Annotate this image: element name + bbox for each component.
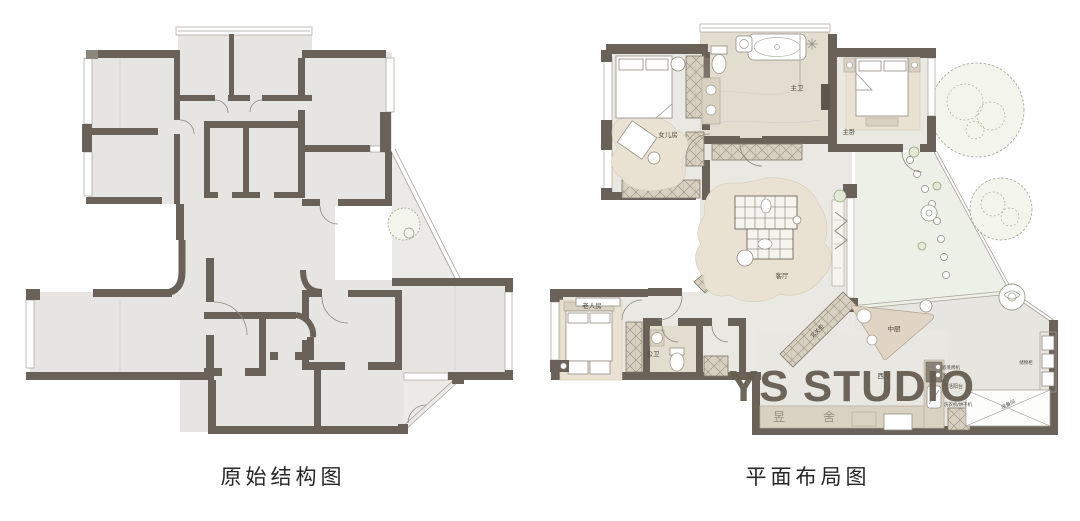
- left-plan-caption: 原始结构图: [221, 466, 346, 489]
- label-master-bedroom: 主卧: [843, 127, 857, 136]
- toilet: [670, 353, 684, 371]
- desk-chair: [648, 152, 660, 164]
- stool: [920, 300, 932, 312]
- side-table: [671, 57, 685, 71]
- tree-large: [930, 63, 1024, 157]
- washbasin: [736, 36, 752, 52]
- label-elder-room: 老人房: [582, 301, 602, 310]
- label-guest-bath: 公卫: [647, 350, 661, 358]
- terrace-plant: [388, 208, 420, 240]
- original-structure-plan: [26, 27, 513, 434]
- corner-planter: [999, 284, 1025, 310]
- watermark-seal-right: 舍: [823, 409, 835, 424]
- island-sink: [857, 309, 871, 323]
- label-daughter-room: 女儿房: [658, 130, 678, 139]
- toilet: [712, 55, 726, 74]
- floorplans-svg: 女儿房 主卫 主卧 客厅 老人房 公卫 中厨 西厨 玄关柜 生活阳台 洗衣机/烘…: [0, 0, 1080, 521]
- bench-seat: [852, 412, 876, 426]
- floorplan-sheet: 女儿房 主卫 主卧 客厅 老人房 公卫 中厨 西厨 玄关柜 生活阳台 洗衣机/烘…: [0, 0, 1080, 521]
- label-chinese-kitchen: 中厨: [888, 324, 902, 333]
- island-table: [884, 414, 912, 430]
- watermark-title: YS STUDIO: [729, 362, 975, 411]
- plant-pot: [834, 190, 846, 202]
- elder-room-furniture: [558, 298, 622, 380]
- toilet-tank: [711, 46, 727, 54]
- floor-stool: [737, 250, 753, 266]
- watermark-seal-left: 昱: [773, 410, 785, 424]
- tree-small: [970, 178, 1032, 240]
- label-master-bath: 主卫: [791, 83, 805, 92]
- bed-bench: [866, 118, 898, 126]
- master-bedroom-furniture: [844, 58, 920, 130]
- label-living-room: 客厅: [776, 271, 790, 280]
- right-plan-caption: 平面布局图: [746, 466, 871, 489]
- label-storage-cabinet: 储物柜: [1019, 359, 1033, 366]
